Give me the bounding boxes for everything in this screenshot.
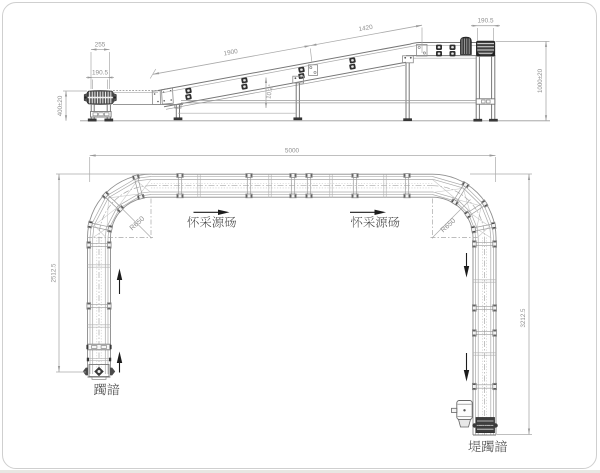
svg-text:1000±20: 1000±20 <box>537 68 544 93</box>
svg-text:10.2°: 10.2° <box>265 83 275 99</box>
svg-text:5000: 5000 <box>285 147 300 154</box>
svg-text:1420: 1420 <box>358 24 374 34</box>
svg-text:1900: 1900 <box>223 48 239 58</box>
svg-text:190.5: 190.5 <box>478 18 494 25</box>
svg-text:3212.5: 3212.5 <box>520 308 527 327</box>
svg-text:190.5: 190.5 <box>92 69 108 76</box>
svg-text:400±20: 400±20 <box>57 95 64 116</box>
svg-text:2512.5: 2512.5 <box>50 263 57 282</box>
svg-text:255: 255 <box>95 42 106 49</box>
svg-text:R650: R650 <box>438 216 457 234</box>
